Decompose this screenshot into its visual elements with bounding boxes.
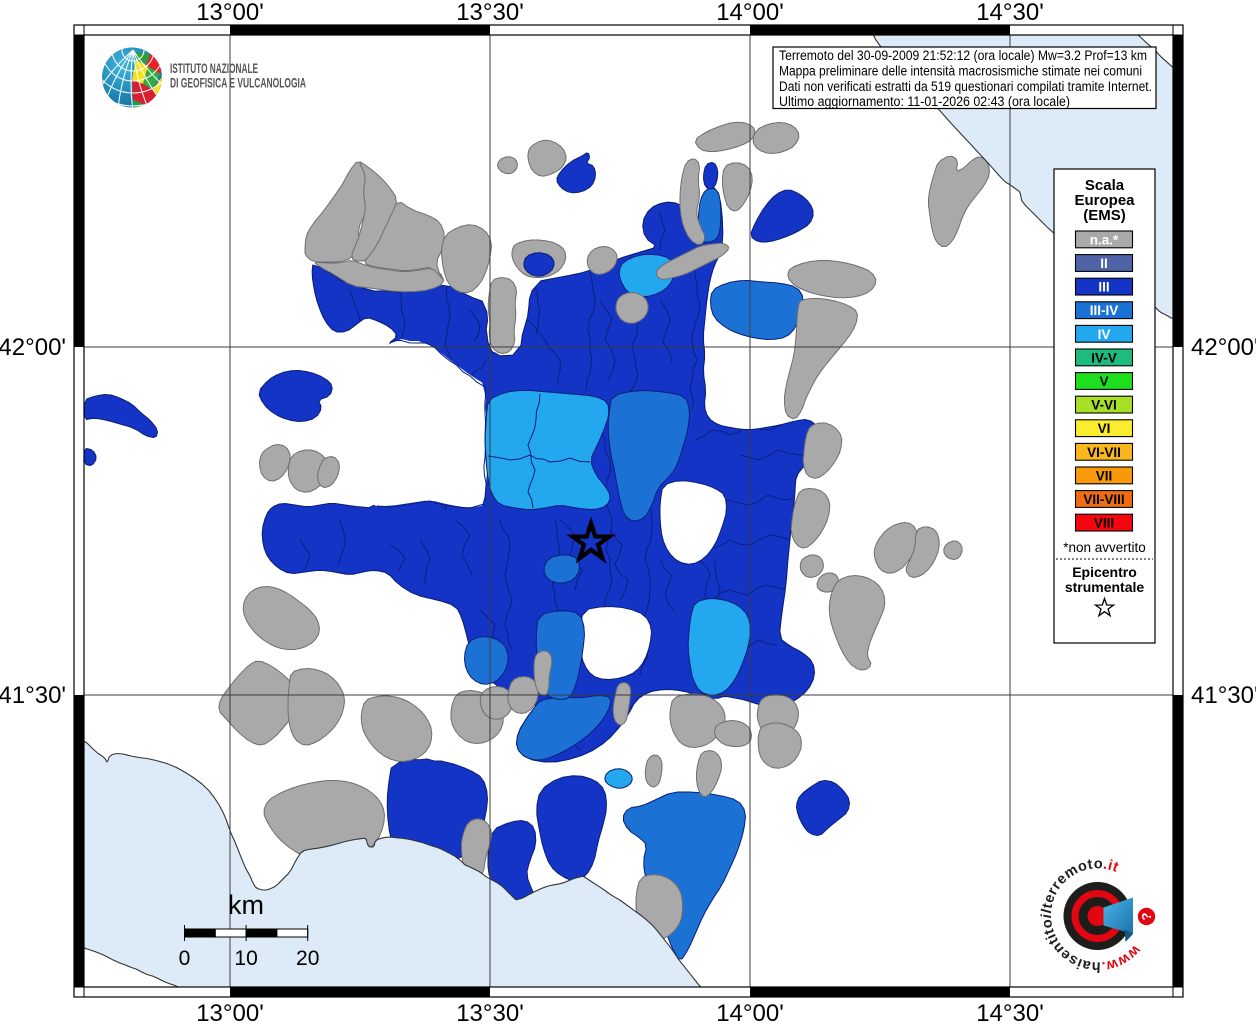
svg-text:VIII: VIII [1094, 516, 1114, 531]
svg-text:n.a.*: n.a.* [1090, 232, 1119, 247]
svg-text:ISTITUTO NAZIONALE: ISTITUTO NAZIONALE [170, 61, 258, 76]
svg-text:?: ? [1139, 912, 1154, 920]
svg-text:Ultimo aggiornamento: 11-01-20: Ultimo aggiornamento: 11-01-2026 02:43 (… [779, 94, 1070, 109]
svg-text:14°30': 14°30' [976, 1000, 1044, 1024]
svg-text:III: III [1098, 280, 1109, 295]
svg-text:41°30': 41°30' [0, 682, 66, 709]
svg-text:(EMS): (EMS) [1083, 207, 1126, 224]
svg-text:km: km [228, 890, 264, 920]
svg-text:strumentale: strumentale [1065, 579, 1145, 595]
svg-text:VI: VI [1098, 421, 1111, 436]
svg-text:42°00': 42°00' [1191, 334, 1256, 361]
svg-text:VI-VII: VI-VII [1087, 445, 1121, 460]
svg-text:VII: VII [1096, 468, 1113, 483]
svg-text:Epicentro: Epicentro [1072, 564, 1137, 580]
svg-text:13°00': 13°00' [196, 0, 264, 26]
svg-text:IV: IV [1098, 327, 1111, 342]
svg-text:14°00': 14°00' [716, 1000, 784, 1024]
svg-text:13°30': 13°30' [456, 0, 524, 26]
svg-text:V: V [1099, 374, 1108, 389]
svg-text:41°30': 41°30' [1191, 682, 1256, 709]
svg-text:Dati non verificati estratti d: Dati non verificati estratti da 519 ques… [779, 79, 1152, 94]
svg-text:*non avvertito: *non avvertito [1063, 540, 1146, 555]
svg-text:DI GEOFISICA E VULCANOLOGIA: DI GEOFISICA E VULCANOLOGIA [170, 76, 306, 91]
svg-text:Mappa preliminare delle intens: Mappa preliminare delle intensità macros… [779, 63, 1142, 78]
svg-text:VII-VIII: VII-VIII [1083, 492, 1124, 507]
svg-text:42°00': 42°00' [0, 334, 66, 361]
svg-text:13°30': 13°30' [456, 1000, 524, 1024]
svg-text:V-VI: V-VI [1091, 398, 1117, 413]
svg-text:III-IV: III-IV [1090, 303, 1119, 318]
svg-text:10: 10 [234, 947, 257, 970]
svg-text:20: 20 [296, 947, 319, 970]
svg-text:IV-V: IV-V [1091, 350, 1117, 365]
svg-text:Terremoto del 30-09-2009 21:52: Terremoto del 30-09-2009 21:52:12 (ora l… [779, 48, 1147, 63]
svg-text:14°00': 14°00' [716, 0, 784, 26]
svg-text:13°00': 13°00' [196, 1000, 264, 1024]
svg-text:0: 0 [179, 947, 191, 970]
svg-text:14°30': 14°30' [976, 0, 1044, 26]
svg-text:II: II [1100, 256, 1108, 271]
